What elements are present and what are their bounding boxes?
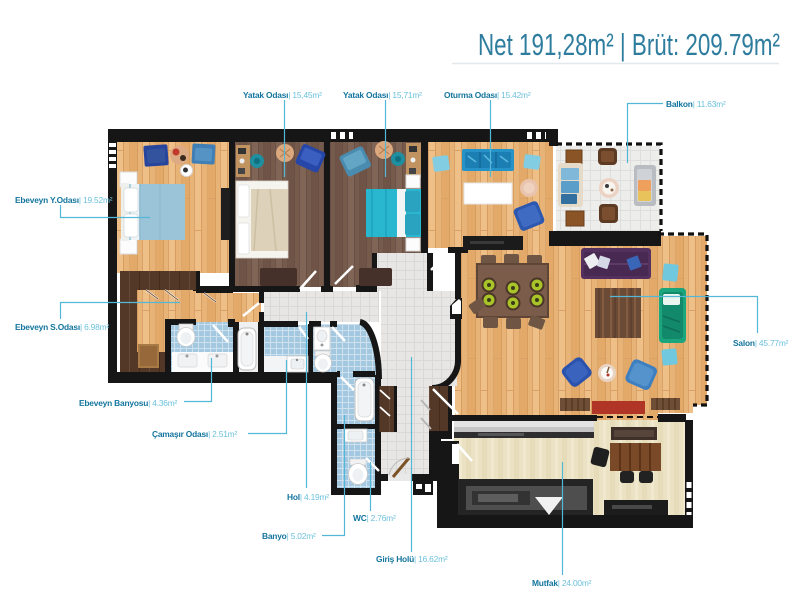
svg-text:Ebeveyn S.Odası| 6.98m²: Ebeveyn S.Odası| 6.98m² <box>15 322 109 332</box>
svg-text:Ebeveyn Y.Odası| 19.52m²: Ebeveyn Y.Odası| 19.52m² <box>15 195 113 205</box>
svg-text:Mutfak| 24.00m²: Mutfak| 24.00m² <box>532 578 592 588</box>
svg-text:Salon| 45.77m²: Salon| 45.77m² <box>733 338 789 348</box>
svg-text:Balkon| 11.63m²: Balkon| 11.63m² <box>666 99 726 109</box>
svg-text:Giriş Holü| 16.62m²: Giriş Holü| 16.62m² <box>376 554 448 564</box>
svg-text:Net 191,28m² | Brüt: 209.79m²: Net 191,28m² | Brüt: 209.79m² <box>478 28 780 62</box>
svg-text:Yatak Odası| 15,71m²: Yatak Odası| 15,71m² <box>343 90 422 100</box>
svg-text:Hol| 4.19m²: Hol| 4.19m² <box>287 492 329 502</box>
svg-text:Banyo| 5.02m²: Banyo| 5.02m² <box>262 531 316 541</box>
svg-text:Oturma Odası| 15.42m²: Oturma Odası| 15.42m² <box>444 90 531 100</box>
svg-text:Ebeveyn Banyosu| 4.36m²: Ebeveyn Banyosu| 4.36m² <box>79 398 178 408</box>
svg-text:Çamaşır Odası| 2.51m²: Çamaşır Odası| 2.51m² <box>152 429 237 439</box>
svg-text:WC| 2.76m²: WC| 2.76m² <box>353 513 396 523</box>
svg-text:Yatak Odası| 15,45m²: Yatak Odası| 15,45m² <box>243 90 322 100</box>
